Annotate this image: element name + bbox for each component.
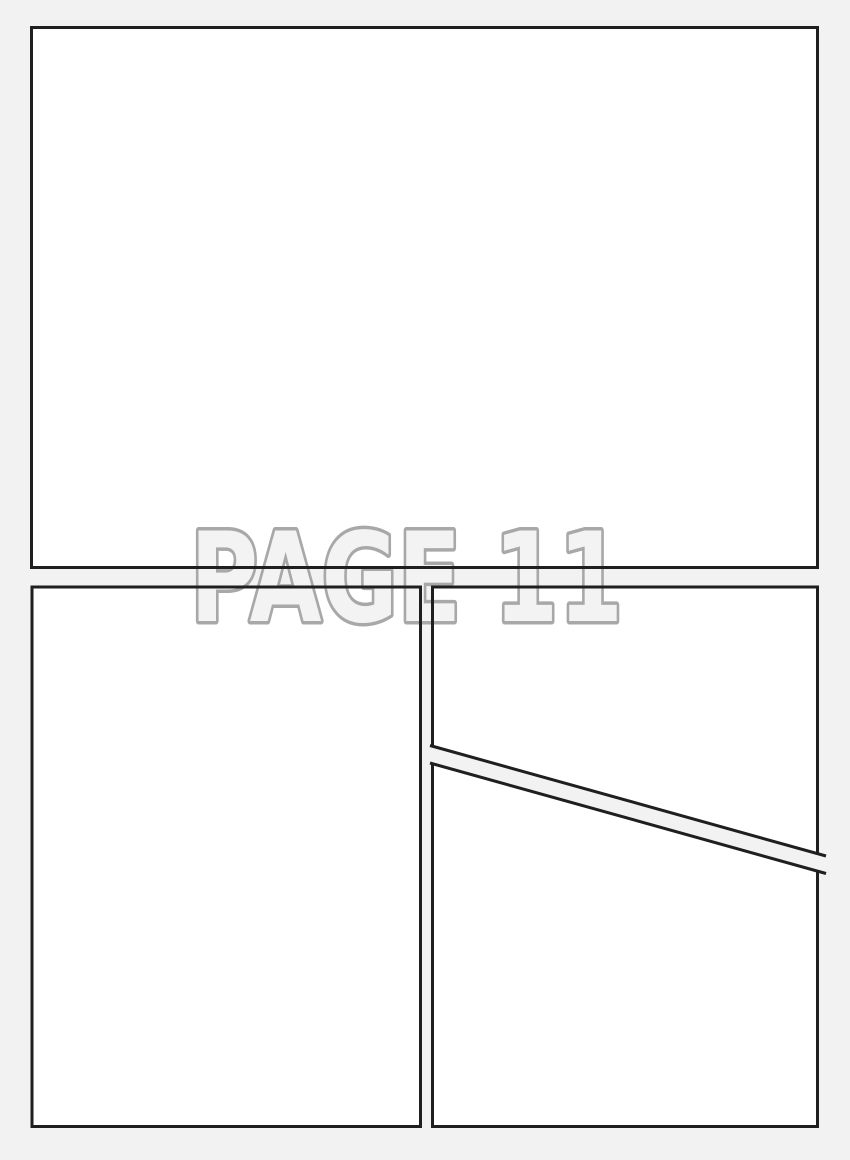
panel-bottom-right-fill	[433, 587, 818, 1127]
comic-page-template: PAGE 11	[0, 0, 850, 1160]
panel-bottom-left-fill	[32, 587, 421, 1127]
page-canvas: PAGE 11	[0, 0, 850, 1160]
panel-top-fill	[32, 28, 818, 568]
page-number-label: PAGE 11	[190, 507, 623, 651]
